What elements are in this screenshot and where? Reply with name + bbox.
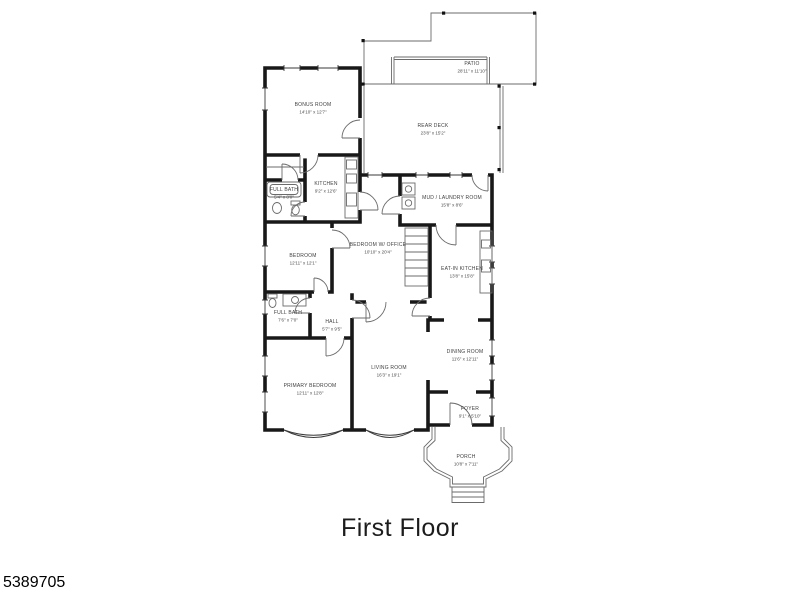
svg-text:23'8" x 15'2": 23'8" x 15'2" xyxy=(421,131,446,136)
room-label-full-bath-upper: FULL BATH 5'4" x 8'0" xyxy=(270,187,298,200)
room-label-rear-deck: REAR DECK 23'8" x 15'2" xyxy=(418,123,449,136)
svg-text:FOYER: FOYER xyxy=(461,406,479,412)
kitchen-counter xyxy=(345,157,358,218)
svg-text:EAT-IN KITCHEN: EAT-IN KITCHEN xyxy=(441,266,483,272)
svg-text:28'11" x 11'10": 28'11" x 11'10" xyxy=(457,69,486,74)
room-label-bedroom-w-office: BEDROOM W/ OFFICE 10'10" x 20'4" xyxy=(350,242,407,255)
rear-deck-outline xyxy=(364,86,503,173)
room-labels: PATIO 28'11" x 11'10" REAR DECK 23'8" x … xyxy=(270,61,487,467)
svg-text:15'8" x 8'6": 15'8" x 8'6" xyxy=(441,203,464,208)
room-label-full-bath-lower: FULL BATH 7'6" x 7'0" xyxy=(274,310,302,323)
svg-text:12'11" x 12'1": 12'11" x 12'1" xyxy=(290,261,317,266)
washer-icon xyxy=(402,183,415,195)
svg-text:FULL BATH: FULL BATH xyxy=(274,310,302,316)
svg-text:FULL BATH: FULL BATH xyxy=(270,187,298,193)
svg-text:14'10" x 12'7": 14'10" x 12'7" xyxy=(299,110,327,115)
svg-text:HALL: HALL xyxy=(325,319,338,325)
svg-text:5'7" x 9'5": 5'7" x 9'5" xyxy=(322,327,342,332)
sink-icon xyxy=(273,203,282,214)
svg-text:10'8" x 7'11": 10'8" x 7'11" xyxy=(454,462,479,467)
room-label-bonus-room: BONUS ROOM 14'10" x 12'7" xyxy=(295,102,332,115)
svg-text:BONUS ROOM: BONUS ROOM xyxy=(295,102,332,108)
room-label-hall: HALL 5'7" x 9'5" xyxy=(322,319,342,332)
svg-text:13'8" x 15'8": 13'8" x 15'8" xyxy=(450,274,475,279)
staircase xyxy=(405,228,428,286)
room-label-mud-laundry-room: MUD / LAUNDRY ROOM 15'8" x 8'6" xyxy=(422,195,482,208)
svg-text:11'6" x 12'11": 11'6" x 12'11" xyxy=(452,357,479,362)
room-label-bedroom: BEDROOM 12'11" x 12'1" xyxy=(289,253,316,266)
room-label-dining-room: DINING ROOM 11'6" x 12'11" xyxy=(447,349,484,362)
deck-posts xyxy=(362,12,537,172)
svg-text:10'10" x 20'4": 10'10" x 20'4" xyxy=(364,250,392,255)
svg-text:MUD / LAUNDRY ROOM: MUD / LAUNDRY ROOM xyxy=(422,195,482,201)
listing-id: 5389705 xyxy=(3,574,65,592)
svg-text:KITCHEN: KITCHEN xyxy=(314,181,338,187)
room-label-eat-in-kitchen: EAT-IN KITCHEN 13'8" x 15'8" xyxy=(441,266,483,279)
floor-title: First Floor xyxy=(0,514,800,543)
floor-plan-drawing: PATIO 28'11" x 11'10" REAR DECK 23'8" x … xyxy=(0,0,800,600)
room-label-living-room: LIVING ROOM 16'3" x 19'1" xyxy=(371,365,407,378)
svg-text:PATIO: PATIO xyxy=(464,61,479,67)
svg-text:5'4" x 8'0": 5'4" x 8'0" xyxy=(274,195,294,200)
svg-text:PORCH: PORCH xyxy=(456,454,475,460)
stove-icon xyxy=(347,193,357,206)
room-label-patio: PATIO 28'11" x 11'10" xyxy=(457,61,486,74)
svg-text:16'3" x 19'1": 16'3" x 19'1" xyxy=(377,373,402,378)
svg-text:DINING ROOM: DINING ROOM xyxy=(447,349,484,355)
svg-text:REAR DECK: REAR DECK xyxy=(418,123,449,129)
svg-text:7'6" x 7'0": 7'6" x 7'0" xyxy=(278,318,298,323)
room-label-foyer: FOYER 9'1" x 5'10" xyxy=(459,406,482,419)
windows xyxy=(262,65,495,416)
floor-plan-page: PATIO 28'11" x 11'10" REAR DECK 23'8" x … xyxy=(0,0,800,600)
room-label-porch: PORCH 10'8" x 7'11" xyxy=(454,454,479,467)
svg-text:12'11" x 12'8": 12'11" x 12'8" xyxy=(297,391,324,396)
svg-text:BEDROOM W/ OFFICE: BEDROOM W/ OFFICE xyxy=(350,242,407,248)
room-label-kitchen: KITCHEN 9'2" x 12'6" xyxy=(314,181,338,194)
svg-text:LIVING ROOM: LIVING ROOM xyxy=(371,365,407,371)
room-label-primary-bedroom: PRIMARY BEDROOM 12'11" x 12'8" xyxy=(284,383,337,396)
svg-text:PRIMARY BEDROOM: PRIMARY BEDROOM xyxy=(284,383,337,389)
svg-text:BEDROOM: BEDROOM xyxy=(289,253,316,259)
doors xyxy=(282,120,488,425)
porch-steps xyxy=(452,487,484,503)
svg-text:9'2" x 12'6": 9'2" x 12'6" xyxy=(315,189,338,194)
dryer-icon xyxy=(402,197,415,209)
patio-outline xyxy=(364,13,536,84)
svg-text:9'1" x 5'10": 9'1" x 5'10" xyxy=(459,414,482,419)
